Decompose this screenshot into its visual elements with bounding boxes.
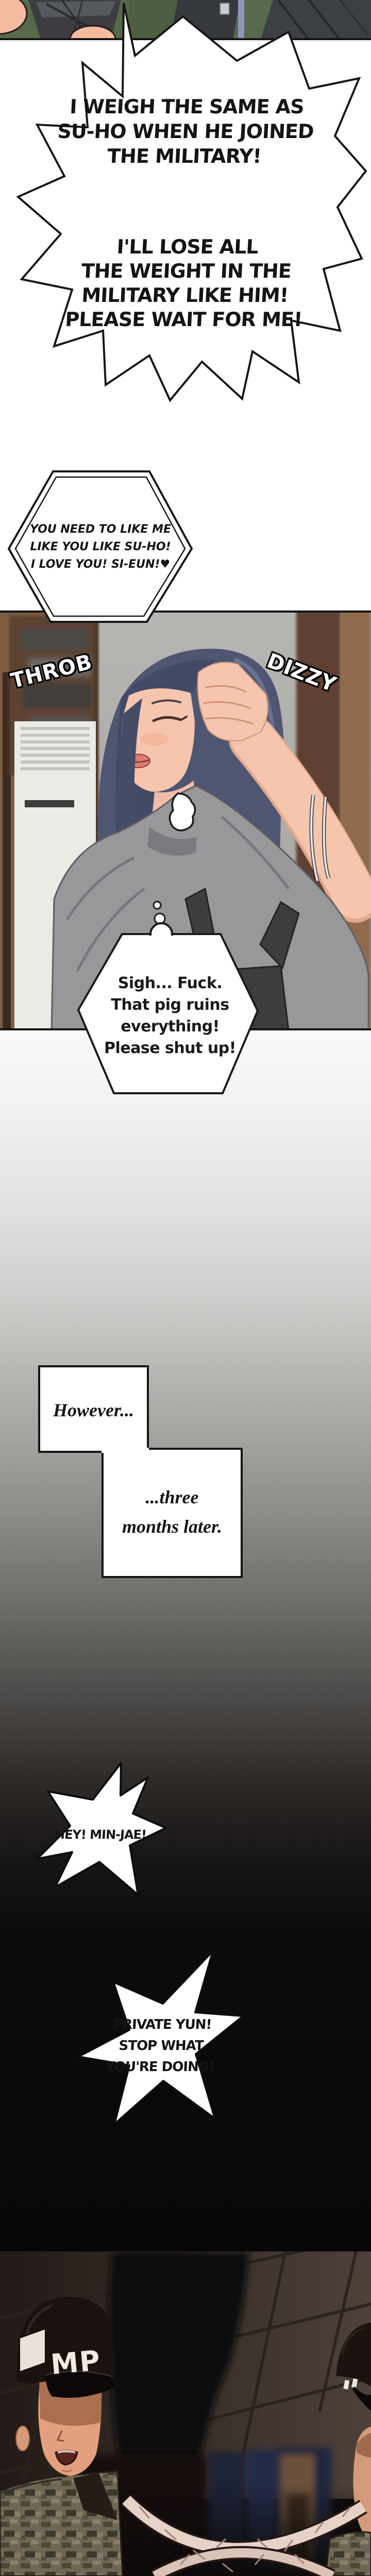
shout-line: PLEASE WAIT FOR ME! — [54, 308, 313, 332]
hey-text: HEY! MIN-JAE! — [46, 1827, 155, 1842]
panel-mp-scene: MP — [0, 2251, 371, 2576]
private-line: YOU'RE DOING! — [86, 2057, 234, 2078]
sigh-line: Please shut up! — [93, 1038, 247, 1059]
ear — [16, 2426, 29, 2451]
confession-line: LIKE YOU LIKE SU-HO! — [21, 538, 180, 556]
confession-line: YOU NEED TO LIKE ME — [21, 521, 180, 538]
shout-line: I'LL LOSE ALL — [58, 235, 316, 259]
caption-however-text: However... — [38, 1397, 149, 1423]
sigh-text: Sigh... Fuck. That pig ruins everything!… — [93, 973, 247, 1059]
caption-later-text: ...three months later. — [102, 1483, 243, 1541]
shout-bubble — [8, 0, 371, 407]
shout-text-top: I WEIGH THE SAME AS SU-HO WHEN HE JOINED… — [55, 94, 316, 168]
private-line: PRIVATE YUN! — [88, 2014, 236, 2036]
confession-text: YOU NEED TO LIKE ME LIKE YOU LIKE SU-HO!… — [21, 521, 180, 573]
shout-line: I WEIGH THE SAME AS — [57, 94, 316, 119]
caption-line: ...three — [102, 1483, 243, 1512]
sigh-line: everything! — [93, 1016, 247, 1038]
private-line: STOP WHAT — [87, 2036, 235, 2057]
shout-text-bottom: I'LL LOSE ALL THE WEIGHT IN THE MILITARY… — [54, 235, 317, 332]
shout-line: THE WEIGHT IN THE — [57, 259, 315, 283]
shout-line: THE MILITARY! — [55, 144, 314, 168]
confession-line: I LOVE YOU! SI-EUN!♥ — [21, 556, 180, 573]
webtoon-page: I WEIGH THE SAME AS SU-HO WHEN HE JOINED… — [0, 0, 371, 2576]
caption-box-overlap-patch — [102, 1448, 149, 1453]
private-text: PRIVATE YUN! STOP WHAT YOU'RE DOING! — [86, 2014, 236, 2078]
sigh-line: Sigh... Fuck. — [93, 973, 247, 994]
sigh-line: That pig ruins — [93, 994, 247, 1016]
caption-line: months later. — [102, 1512, 243, 1541]
mp-cap-label: MP — [49, 2344, 102, 2381]
shout-line: MILITARY LIKE HIM! — [56, 283, 314, 308]
blush — [140, 733, 169, 745]
shout-line: SU-HO WHEN HE JOINED — [56, 119, 315, 144]
shout-bubble-shape — [18, 3, 366, 400]
